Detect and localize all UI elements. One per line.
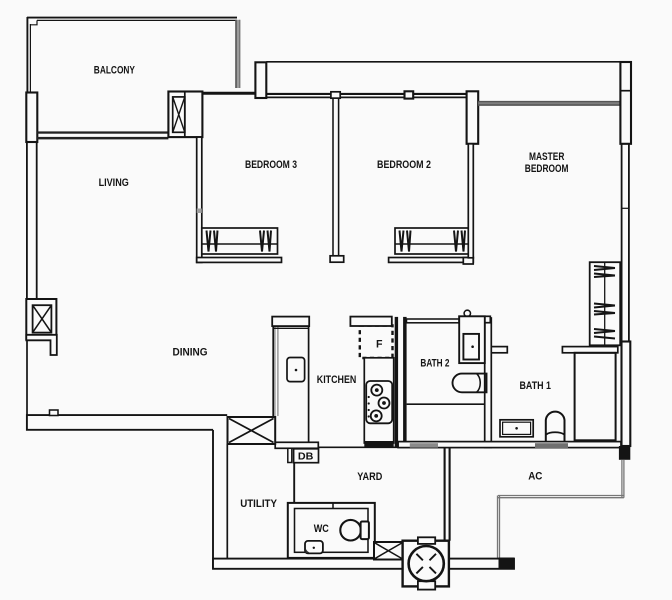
svg-text:MASTER: MASTER (529, 151, 564, 163)
svg-text:UTILITY: UTILITY (240, 498, 277, 510)
svg-text:KITCHEN: KITCHEN (317, 374, 357, 386)
svg-text:BEDROOM 3: BEDROOM 3 (245, 159, 297, 171)
svg-text:BEDROOM 2: BEDROOM 2 (377, 159, 431, 171)
svg-text:WC: WC (314, 523, 329, 535)
svg-text:F: F (376, 338, 383, 350)
svg-text:DINING: DINING (173, 347, 208, 359)
svg-text:BEDROOM: BEDROOM (525, 163, 569, 175)
svg-text:BATH 2: BATH 2 (420, 358, 449, 370)
svg-text:BATH 1: BATH 1 (520, 380, 552, 392)
svg-text:AC: AC (528, 471, 542, 483)
svg-text:YARD: YARD (357, 471, 382, 483)
svg-text:DB: DB (298, 451, 314, 463)
svg-text:LIVING: LIVING (99, 177, 129, 189)
svg-text:BALCONY: BALCONY (94, 64, 136, 76)
